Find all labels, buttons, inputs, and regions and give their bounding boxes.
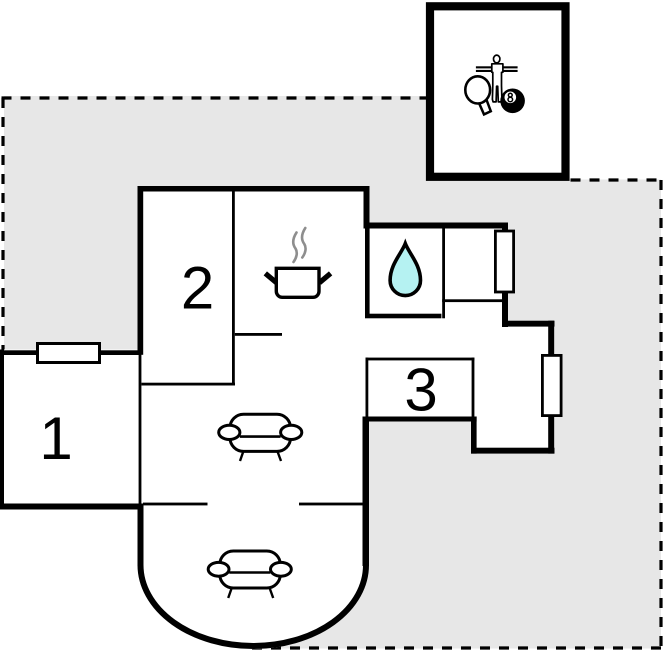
svg-text:3: 3 xyxy=(404,357,437,424)
svg-text:1: 1 xyxy=(39,405,72,472)
svg-text:2: 2 xyxy=(181,255,214,322)
